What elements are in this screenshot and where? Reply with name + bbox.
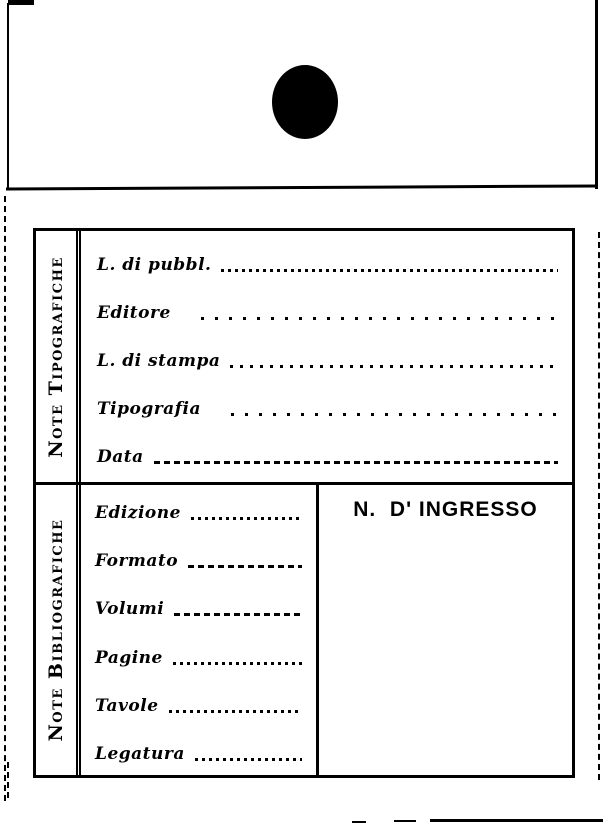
field-label: L. di pubbl. (97, 257, 211, 274)
field-row-editore: Editore (97, 305, 558, 322)
dotted-fill-line (169, 710, 302, 713)
field-label: L. di stampa (97, 353, 220, 370)
field-label: Editore (97, 305, 171, 322)
dotted-fill-line (195, 758, 302, 761)
card-right-scan-edge (598, 232, 600, 780)
top-card-right-edge (595, 0, 598, 189)
ingresso-title: N. D' INGRESSO (319, 498, 572, 522)
ingresso-box: N. D' INGRESSO (316, 485, 572, 775)
field-row-legatura: Legatura (95, 746, 302, 763)
field-row-formato: Formato (95, 553, 302, 570)
next-card-top-edge-dash (352, 821, 366, 823)
bibliographic-fields: Edizione Formato Volumi Pagine Tavole (81, 485, 316, 775)
dotted-fill-line (231, 413, 558, 416)
dotted-fill-line (173, 662, 302, 665)
card-left-scan-edge (4, 196, 6, 801)
section-side-column: Note Tipografiche (36, 231, 81, 482)
top-card-bottom-edge (6, 184, 598, 190)
dotted-fill-line (201, 317, 558, 320)
section-label-note-tipografiche: Note Tipografiche (45, 256, 67, 458)
section-label-note-bibliografiche: Note Bibliografiche (45, 519, 67, 742)
dotted-fill-line (230, 365, 558, 368)
field-label: Tavole (95, 698, 159, 715)
field-label: Formato (95, 553, 178, 570)
next-card-top-edge-dash (394, 820, 416, 822)
next-card-top-edge (430, 819, 603, 822)
bottom-left-edge-mark (7, 762, 9, 798)
top-card-corner-mark (8, 0, 34, 5)
field-row-l-di-pubbl: L. di pubbl. (97, 257, 558, 274)
field-label: Edizione (95, 505, 181, 522)
field-label: Legatura (95, 746, 185, 763)
dotted-fill-line (174, 613, 302, 616)
field-row-pagine: Pagine (95, 650, 302, 667)
section-note-bibliografiche: Note Bibliografiche Edizione Formato Vol… (36, 485, 572, 775)
field-row-l-di-stampa: L. di stampa (97, 353, 558, 370)
dotted-fill-line (191, 517, 302, 520)
typographic-fields: L. di pubbl. Editore L. di stampa Tipogr… (81, 231, 572, 482)
scanned-catalog-card: Note Tipografiche L. di pubbl. Editore L… (0, 0, 603, 827)
hole-punch-mark (272, 65, 338, 139)
field-label: Volumi (95, 601, 164, 618)
field-row-data: Data (97, 449, 558, 466)
dotted-fill-line (154, 461, 558, 464)
dotted-fill-line (188, 565, 302, 568)
dotted-fill-line (221, 269, 558, 272)
field-row-edizione: Edizione (95, 505, 302, 522)
field-label: Pagine (95, 650, 163, 667)
field-row-volumi: Volumi (95, 601, 302, 618)
section-side-column: Note Bibliografiche (36, 485, 81, 775)
field-label: Data (97, 449, 144, 466)
field-row-tipografia: Tipografia (97, 401, 558, 418)
field-row-tavole: Tavole (95, 698, 302, 715)
section-note-tipografiche: Note Tipografiche L. di pubbl. Editore L… (36, 231, 572, 485)
top-card-left-edge (7, 3, 9, 190)
field-label: Tipografia (97, 401, 201, 418)
bibliographic-form: Note Tipografiche L. di pubbl. Editore L… (33, 228, 575, 778)
